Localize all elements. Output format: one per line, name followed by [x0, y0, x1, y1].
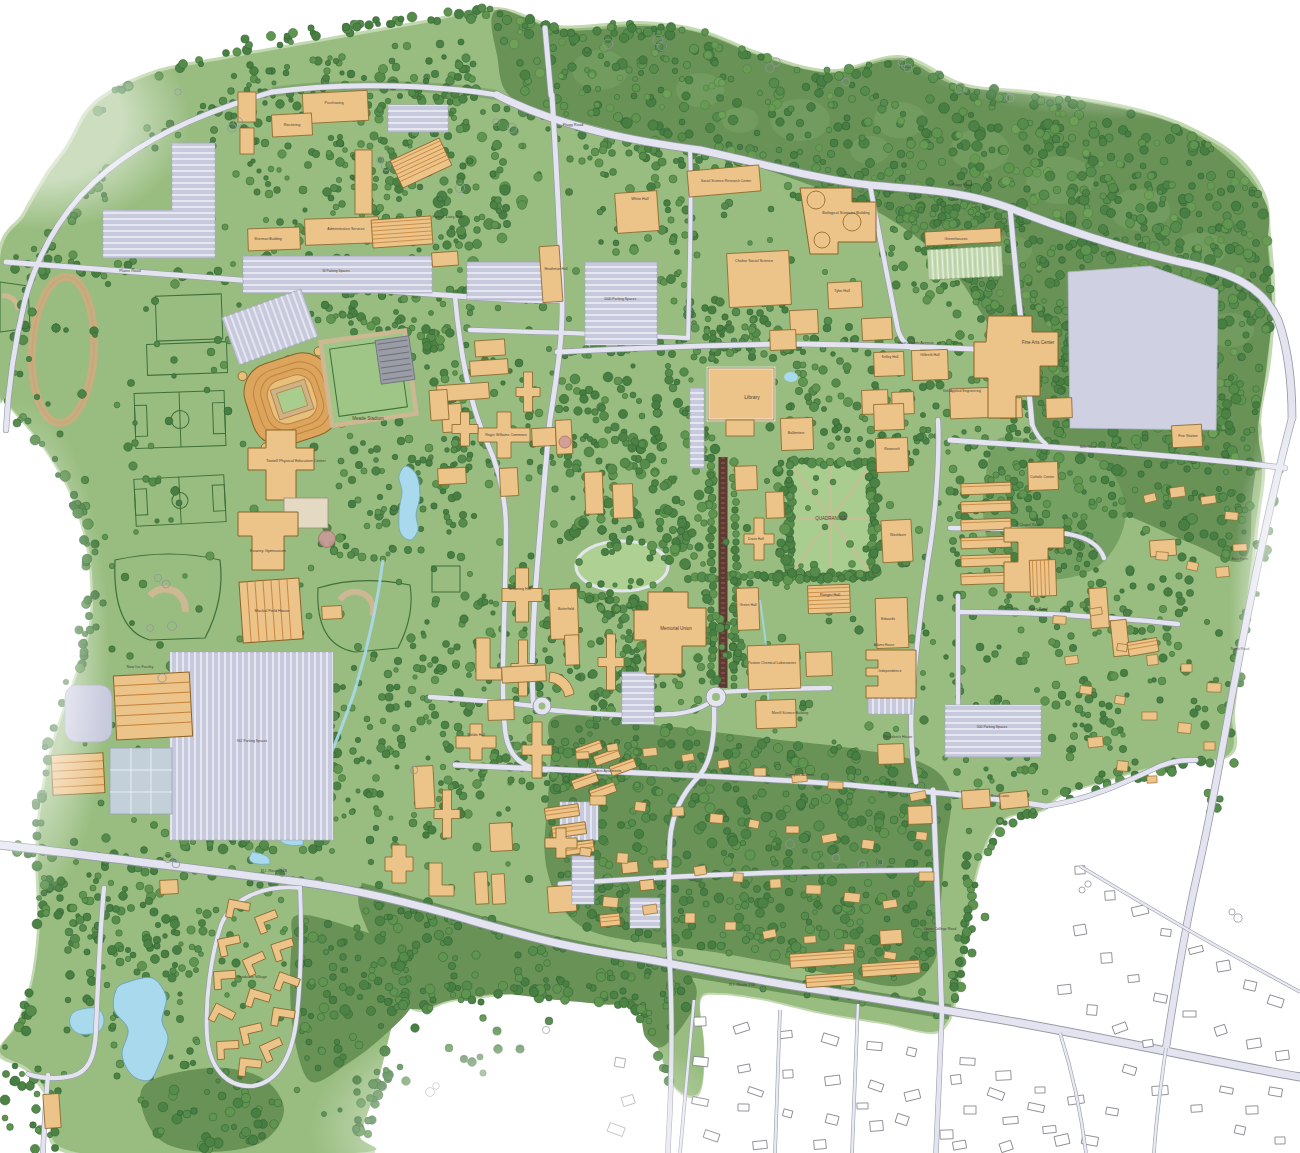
svg-text:Purchasing: Purchasing [325, 101, 344, 105]
svg-text:Browning Hall: Browning Hall [509, 587, 531, 591]
svg-text:Tootell Physical Education Cen: Tootell Physical Education Center [266, 458, 326, 463]
svg-text:Weldin Hall: Weldin Hall [467, 733, 485, 737]
svg-text:R.I. Route 138: R.I. Route 138 [261, 868, 288, 873]
svg-text:Social Science Research Center: Social Science Research Center [701, 179, 752, 183]
svg-text:1000 Parking Spaces: 1000 Parking Spaces [604, 297, 637, 301]
svg-text:Adams House: Adams House [874, 643, 895, 647]
svg-text:500 Parking Spaces: 500 Parking Spaces [977, 725, 1008, 729]
svg-text:Fine Arts Center: Fine Arts Center [1022, 340, 1055, 345]
svg-text:Fortin Road: Fortin Road [1029, 607, 1048, 611]
svg-text:Morrill Science Building: Morrill Science Building [772, 711, 808, 715]
svg-text:Briar Lane: Briar Lane [991, 793, 1010, 798]
svg-text:Sherman Building: Sherman Building [254, 237, 282, 241]
svg-text:Kelley Hall: Kelley Hall [882, 355, 899, 359]
svg-text:Ballentine: Ballentine [788, 431, 805, 435]
svg-text:Meade Stadium: Meade Stadium [352, 416, 384, 421]
svg-text:Catholic Center: Catholic Center [1030, 475, 1055, 479]
svg-text:Gilbreth Hall: Gilbreth Hall [920, 353, 939, 357]
svg-text:President's House: President's House [884, 735, 912, 739]
svg-text:Library: Library [744, 394, 760, 400]
svg-text:Biological Sciences Building: Biological Sciences Building [822, 211, 869, 215]
svg-text:Administrative Services: Administrative Services [327, 227, 365, 231]
svg-text:Edwards: Edwards [881, 617, 895, 621]
svg-text:QUADRANGLE: QUADRANGLE [815, 516, 847, 521]
svg-text:Davis Hall: Davis Hall [748, 537, 764, 541]
svg-text:Graduate Village: Graduate Village [237, 974, 268, 979]
svg-text:Greenhouses: Greenhouses [945, 237, 968, 241]
svg-text:Student Apartments: Student Apartments [591, 769, 622, 773]
svg-text:Fire Station: Fire Station [1178, 434, 1197, 438]
svg-text:Roosevelt: Roosevelt [884, 447, 900, 451]
svg-text:Plains Road: Plains Road [119, 268, 141, 273]
svg-text:Flagg Road: Flagg Road [563, 122, 584, 127]
svg-text:East Alumni Avenue: East Alumni Avenue [898, 340, 934, 345]
svg-text:Keaney Gymnasium: Keaney Gymnasium [250, 548, 287, 553]
svg-text:Heathman Hall: Heathman Hall [544, 267, 567, 271]
svg-text:962 Parking Spaces: 962 Parking Spaces [237, 739, 268, 743]
svg-text:Independence: Independence [879, 669, 902, 673]
svg-text:Washburn: Washburn [890, 533, 906, 537]
svg-text:R.I. Route 138: R.I. Route 138 [729, 982, 756, 987]
svg-text:Chapel Road: Chapel Road [1020, 523, 1041, 527]
svg-text:Campus Avenue: Campus Avenue [785, 772, 815, 777]
svg-text:Tyler Hall: Tyler Hall [834, 289, 850, 293]
svg-text:New Ice Facility: New Ice Facility [127, 665, 154, 669]
svg-text:Mackal Field House: Mackal Field House [254, 608, 290, 613]
svg-text:Butterfield: Butterfield [558, 607, 574, 611]
svg-text:Memorial Union: Memorial Union [660, 626, 692, 631]
svg-text:Pastore Chemical Laboratories: Pastore Chemical Laboratories [748, 661, 796, 665]
svg-text:Ranger Hall: Ranger Hall [820, 593, 840, 597]
svg-text:W Parking Spaces: W Parking Spaces [322, 269, 349, 273]
svg-text:Green Hall: Green Hall [739, 603, 756, 607]
svg-text:Flagg Road: Flagg Road [952, 182, 973, 187]
svg-text:Former Dairy Barn: Former Dairy Barn [432, 215, 463, 219]
svg-text:Bills Road: Bills Road [1080, 445, 1096, 449]
svg-text:Upper College Road: Upper College Road [924, 927, 957, 931]
svg-text:Receiving: Receiving [284, 123, 301, 127]
svg-text:Roger Williams Commons: Roger Williams Commons [485, 433, 527, 437]
svg-text:Kirk Applied Engineering: Kirk Applied Engineering [943, 389, 981, 393]
svg-text:White Hall: White Hall [631, 197, 648, 201]
svg-text:Chafee Social Science: Chafee Social Science [735, 259, 773, 263]
